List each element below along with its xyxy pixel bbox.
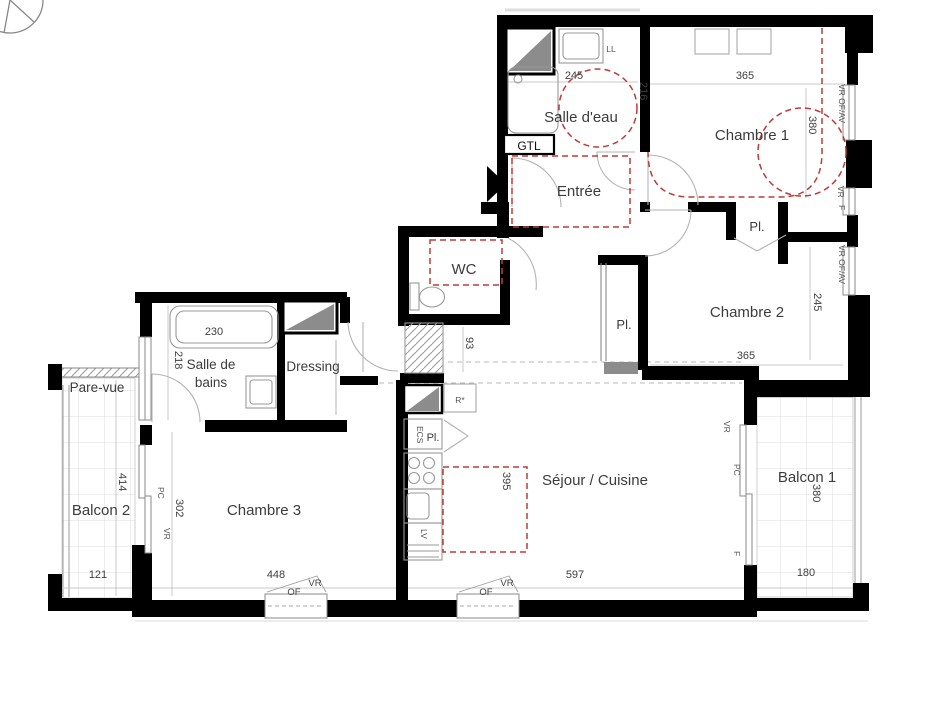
label-chambre3: Chambre 3 [227,502,301,519]
label-r-star: R* [455,395,465,405]
label-salle-eau: Salle d'eau [544,109,618,126]
dim-chambre1-380: 380 [806,116,818,134]
dim-balcon1-380: 380 [810,484,822,502]
tag-f-ch1b: F [837,205,847,210]
pare-vue-screen [55,368,140,377]
tag-pc-chambre3: PC [156,487,166,499]
label-gtl: GTL [517,139,541,153]
closet-base [604,362,638,374]
tag-vr-of-av-ch1: VR OF/AV [837,84,847,123]
dim-hall-93: 93 [463,337,475,349]
label-wc: WC [452,261,477,278]
label-dressing: Dressing [286,359,339,374]
dim-chambre2-365: 365 [737,350,755,362]
tag-of-window2: OF [479,587,492,598]
floor-plan-svg: Salle d'eau Chambre 1 Entrée WC Chambre … [0,0,940,705]
tag-pc-sejour: PC [732,464,742,476]
dim-sejour-597: 597 [566,569,584,581]
dressing-shaft-icon [283,301,337,333]
dim-cuisine-395: 395 [500,472,512,490]
label-chambre2: Chambre 2 [710,304,784,321]
dim-bain-218: 218 [172,351,184,369]
tag-vr-sejour: VR [722,421,732,433]
tag-vr-window2: VR [500,578,513,589]
label-pl-chambre2: Pl. [616,317,631,332]
tag-vr-of-av-ch2: VR OF/AV [837,245,847,284]
label-ll: LL [606,44,616,54]
label-balcon1: Balcon 1 [778,469,836,486]
dim-chambre3-302: 302 [173,499,185,517]
label-salle-de-bains-2: bains [195,375,228,390]
label-salle-de-bains-1: Salle de [187,357,236,372]
kitchen-shaft-icon [404,385,442,413]
tag-of-window1: OF [287,587,300,598]
dim-chambre1-365: 365 [736,70,754,82]
dim-salle-eau-216: 216 [637,82,649,100]
hatched-shaft [405,323,443,373]
tag-f-sejour: F [732,551,742,556]
label-pl-cuisine: Pl. [427,432,440,444]
dim-salle-eau-245: 245 [565,70,583,82]
label-entree: Entrée [557,183,601,200]
dim-balcon2-121: 121 [89,569,107,581]
dim-chambre2-245: 245 [811,293,823,311]
tag-vr-chambre3: VR [162,528,172,540]
label-balcon2: Balcon 2 [72,502,130,519]
label-pl-hall: Pl. [749,219,764,234]
tag-vr-ch1b: VR [836,186,846,198]
label-pare-vue: Pare-vue [70,380,125,395]
dim-balcon1-180: 180 [797,567,815,579]
label-chambre1: Chambre 1 [715,127,789,144]
dim-bain-230: 230 [205,326,223,338]
label-sejour-cuisine: Séjour / Cuisine [542,472,648,489]
label-ecs: ECS [415,426,425,444]
label-lv: LV [419,529,429,539]
dim-balcon2-414: 414 [116,473,128,491]
dim-chambre3-448: 448 [267,569,285,581]
tag-vr-window1: VR [308,578,321,589]
floor-plan: Salle d'eau Chambre 1 Entrée WC Chambre … [0,0,940,705]
